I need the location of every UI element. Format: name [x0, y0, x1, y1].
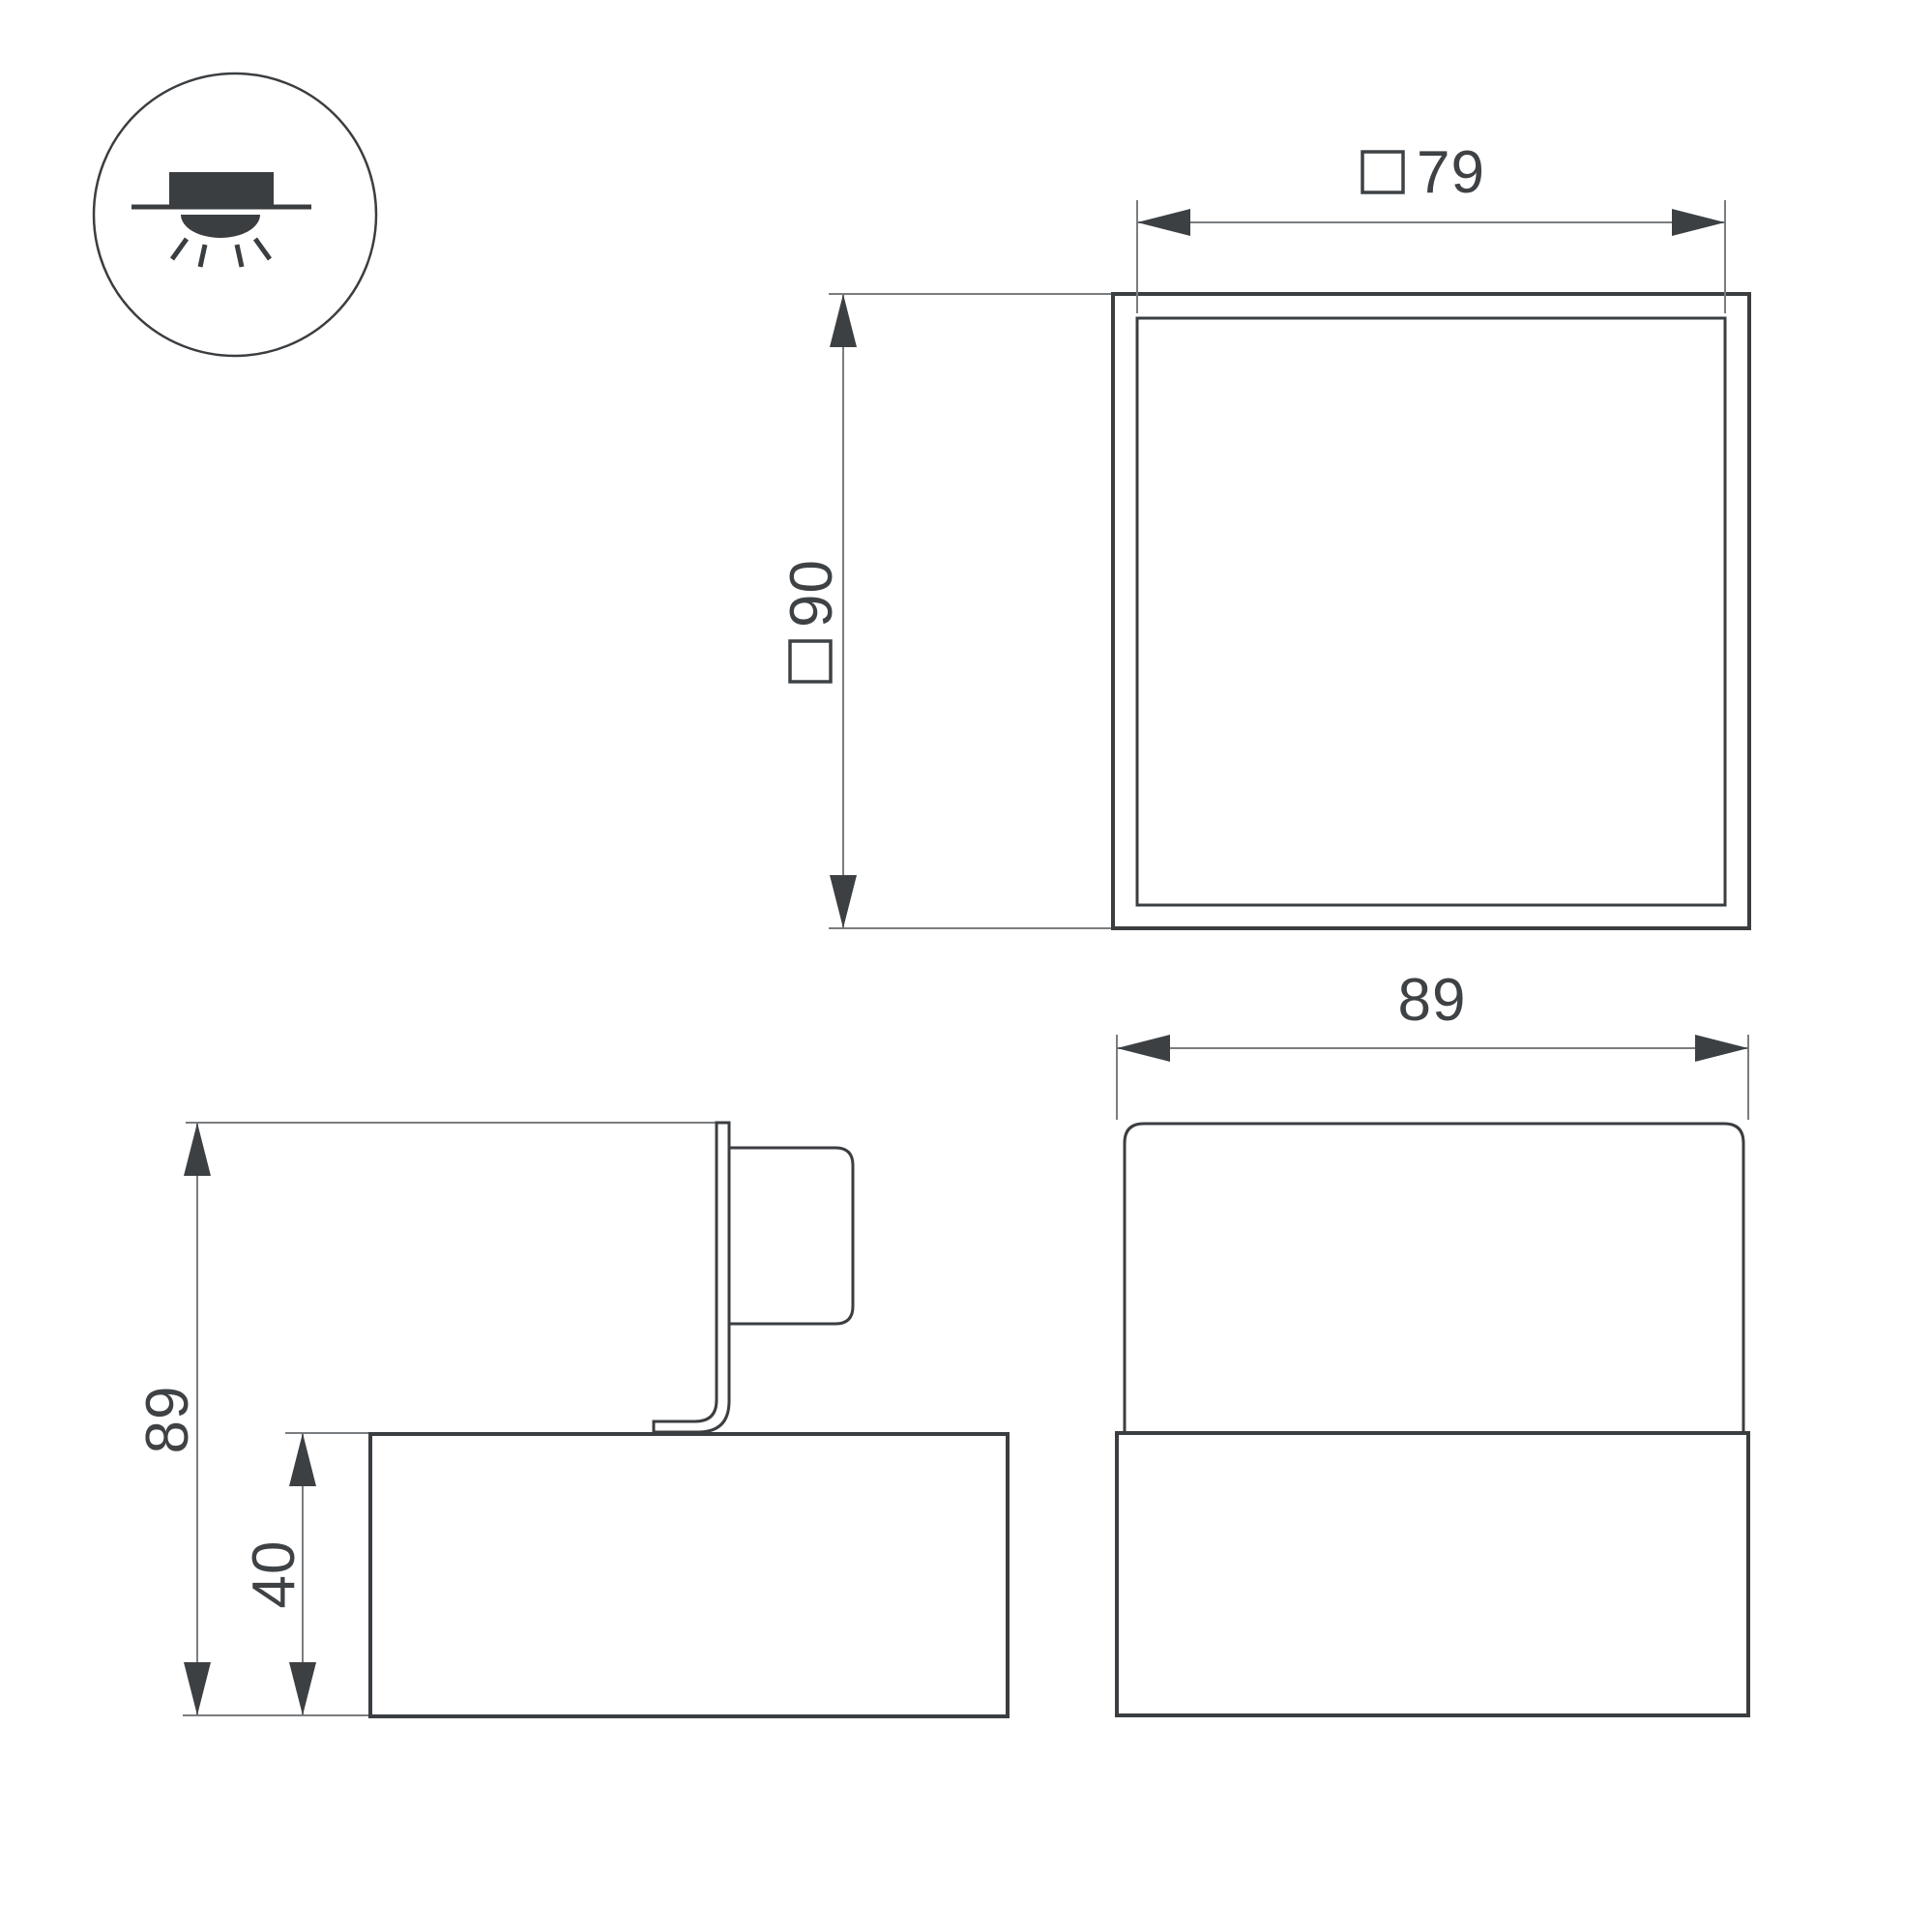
arrowhead-left [1117, 1035, 1170, 1062]
dimension-top-size: 90 [778, 294, 1111, 928]
square-symbol-icon [1362, 152, 1403, 192]
arrowhead-left [1137, 209, 1190, 236]
rotated-label-group: 89 [134, 1386, 201, 1454]
front-view-head [1125, 1124, 1743, 1434]
arrowhead-up [289, 1433, 316, 1486]
front-view: 89 [1117, 967, 1748, 1715]
side-view-base [370, 1434, 1008, 1716]
dimension-label: 90 [778, 559, 845, 628]
technical-drawing-page: 79 90 89 [0, 0, 1932, 1932]
arrowhead-down [830, 875, 857, 928]
dimension-label: 40 [241, 1540, 307, 1609]
rotated-label-group: 90 [778, 559, 845, 682]
light-ray [172, 239, 187, 259]
top-view-inner-square [1137, 318, 1725, 905]
dimension-front-width: 89 [1117, 967, 1748, 1120]
rotated-label-group: 40 [241, 1540, 307, 1609]
arrowhead-up [830, 294, 857, 347]
square-symbol-icon [790, 641, 831, 682]
lamp-housing-icon [169, 172, 274, 205]
top-view: 79 90 [778, 139, 1749, 928]
dimension-label: 89 [1398, 967, 1467, 1034]
dimension-side-overall-height: 89 [134, 1123, 211, 1715]
lamp-diffuser-icon [181, 215, 260, 238]
mounting-bracket [654, 1123, 729, 1432]
mount-type-icon [94, 73, 376, 356]
light-ray [255, 239, 270, 259]
arrowhead-down [184, 1662, 211, 1715]
dimension-label: 79 [1417, 139, 1485, 206]
front-view-base [1117, 1433, 1748, 1715]
arrowhead-up [184, 1123, 211, 1176]
dimension-side-base-height: 40 [241, 1433, 316, 1715]
arrowhead-right [1672, 209, 1725, 236]
dimension-drawing: 79 90 89 [0, 0, 1932, 1932]
light-ray [237, 245, 242, 267]
light-rays-icon [172, 239, 270, 267]
dimension-top-width: 79 [1137, 139, 1725, 313]
light-ray [200, 245, 205, 267]
dimension-label: 89 [134, 1386, 201, 1454]
top-view-outer-square [1113, 294, 1749, 928]
side-view: 89 40 [134, 1123, 1008, 1716]
arrowhead-down [289, 1662, 316, 1715]
driver-box [729, 1148, 853, 1324]
arrowhead-right [1695, 1035, 1748, 1062]
